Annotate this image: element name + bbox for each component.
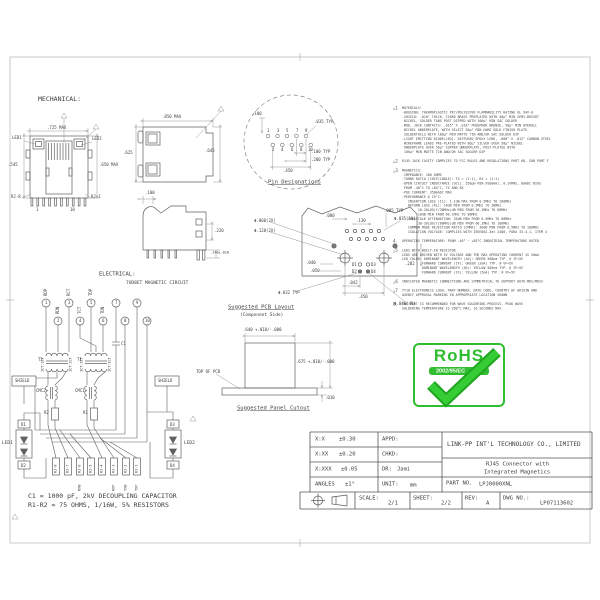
pcb-dim-phi128: Φ.128(2X)	[254, 229, 276, 233]
product-title-line2: Integrated Magnetics	[484, 469, 550, 475]
dr-value: Jami	[397, 466, 410, 472]
rj-pad-label: RJ-5	[89, 465, 93, 473]
front-led2-label: LED2	[92, 137, 102, 141]
rohs-checkmark-icon	[415, 345, 507, 409]
note-marker: △1	[393, 106, 402, 155]
note-text: LEDS WITH BUILT-IN RESISTOR LEDS ARE DRI…	[402, 248, 539, 274]
panel-cutout-dims	[216, 333, 333, 402]
sch-signal-rdn: RDN	[56, 307, 60, 314]
rj-pad-label: RJ-4	[100, 465, 104, 473]
sch-pin-number: 10	[145, 319, 150, 323]
note-marker: 8.	[393, 302, 402, 311]
tol-xxx-value: ±0.05	[341, 466, 358, 472]
shield-label-right: SHIELD	[158, 379, 172, 383]
panel-dim-thickness: .010	[325, 396, 335, 400]
pin-number: 2	[272, 148, 274, 152]
pins-dim-100t: .100 TYP	[311, 150, 330, 154]
d3-label: D3	[170, 423, 175, 427]
pcb-d4-label: D4	[371, 270, 376, 274]
magnetic-circuit-subtitle: 7UD8ET MAGNETIC CIRCUIT	[126, 281, 188, 286]
top-view	[138, 127, 213, 182]
pcb-dim-450: .450	[358, 295, 368, 299]
company-name: LINK-PP INT'L TECHNOLOGY CO., LIMITED	[447, 441, 581, 447]
side-view-dims	[140, 196, 220, 258]
pin-designations-title: Pin Designations	[268, 179, 321, 185]
note-marker: △2	[393, 159, 402, 164]
d1-label: D1	[21, 423, 26, 427]
rj-pad-label: RJ-6	[78, 465, 82, 473]
led1-label: LED1	[2, 441, 13, 446]
front-dim-width: .725 MAX	[47, 126, 66, 130]
note-marker: △5	[393, 248, 402, 274]
rj-pad-label: RJ-8	[54, 465, 58, 473]
side-dim-r2: .140±.010	[210, 251, 229, 255]
pin-number: 3	[277, 129, 279, 133]
note-item: 8.THE PART IS RECOMMENDED FOR WAVE SOLDE…	[393, 302, 598, 311]
sch-signal-rdp: RDP	[44, 289, 48, 296]
turns-ratio-label: 1CT:1CT	[41, 357, 45, 372]
pin-number: 1	[267, 129, 269, 133]
part-no-label: PART NO.	[446, 480, 472, 486]
part-no-value: LPJ0000XNL	[479, 481, 512, 487]
pin-number: 7	[296, 129, 298, 133]
tol-xx-label: X:XX	[315, 451, 328, 457]
top-dim-right: .645	[205, 149, 215, 153]
mechanical-title: MECHANICAL:	[38, 96, 81, 103]
sch-signal-tct: TCT	[78, 307, 82, 314]
front-dim-left: .545	[8, 163, 18, 167]
pcb-d3-label: D3	[371, 263, 376, 267]
cmc1-label: CMC1	[75, 389, 85, 393]
capacitor-note: C1 = 1000 pF, 2kV DECOUPLING CAPACITOR	[28, 493, 177, 500]
pcb-layout-title: Suggested PCB Layout	[228, 304, 294, 310]
scale-label: SCALE:	[359, 495, 379, 501]
rj-pad-label: RJ-7	[66, 465, 70, 473]
dwg-no-value: LP07113602	[540, 500, 573, 506]
product-title-line1: RJ45 Connector with	[486, 461, 549, 467]
pin-number: 4	[281, 148, 283, 152]
note-item: 4.OPERATING TEMPERATURE: FROM -40° ~ +85…	[393, 239, 598, 244]
pins-dim-035: .035 TYP	[314, 120, 333, 124]
tol-xx-value: ±0.20	[339, 451, 356, 457]
tol-angles-value: ±1°	[345, 481, 355, 487]
sig-rxp-label: RXP	[112, 485, 116, 491]
sig-txn-label: TXN	[124, 485, 128, 491]
rev-label: REV:	[465, 495, 478, 501]
pin-number: 6	[291, 148, 293, 152]
sch-pin-number: 6	[102, 319, 104, 323]
note-text: RJ45 JACK CAVITY COMPLIES TO FCC RULES A…	[402, 159, 549, 164]
schematic-wires	[24, 307, 173, 478]
note-item: △3MAGNETICS: -IMPEDANCE: 100 OHMS -TURNS…	[393, 168, 598, 234]
sig-rxn-label: RXN	[78, 485, 82, 491]
drawing-sheet: MECHANICAL: ELECTRICAL: 7UD8ET MAGNETIC …	[0, 0, 600, 600]
sch-signal-tdp: TDP	[89, 289, 93, 296]
electrical-title: ELECTRICAL:	[99, 271, 135, 277]
note-marker: 4.	[393, 239, 402, 244]
pin-number: 5	[286, 129, 288, 133]
chkd-label: CHKD:	[382, 451, 399, 457]
pcb-dim-080: .080	[325, 214, 335, 218]
rohs-logo: RoHS 2002/95/EC	[413, 343, 505, 407]
sch-pin-number: 5	[90, 301, 92, 305]
turns-ratio-label: 1CT:1CT	[69, 357, 73, 372]
appd-label: APPD:	[382, 436, 399, 442]
front-view	[26, 136, 92, 206]
d2-label: D2	[21, 464, 26, 468]
sch-signal-tdn: TDN	[101, 307, 105, 314]
unit-label: UNIT:	[382, 481, 399, 487]
projection-symbol-icon	[311, 494, 347, 508]
note-item: △1MATERIALS: -HOUSING: THERMOPLASTIC PET…	[393, 106, 598, 155]
note-item: △2RJ45 JACK CAVITY COMPLIES TO FCC RULES…	[393, 159, 598, 164]
c1-label: C1	[121, 342, 126, 346]
side-dim-r1: .220	[214, 229, 224, 233]
shield-label-left: SHIELD	[15, 379, 29, 383]
sch-pin-number: 1	[45, 301, 47, 305]
note-marker: △3	[393, 168, 402, 234]
d4-label: D4	[170, 464, 175, 468]
sch-pin-number: 2	[57, 319, 59, 323]
r2-label: R2	[44, 411, 49, 415]
note-marker: △7	[393, 289, 402, 298]
pcb-dim-040: .040	[306, 261, 316, 265]
pin-designation-detail	[244, 95, 338, 189]
turns-ratio-label: 1CT:1CT	[108, 357, 112, 372]
top-dim-width: .850 MAX	[162, 115, 181, 119]
unit-value: mm	[410, 482, 417, 488]
pcb-d2-label: D2	[352, 270, 357, 274]
pin-number: 9	[305, 129, 307, 133]
front-rj8-label: RJ-8	[11, 195, 21, 199]
note-item: △6INDICATED MAGNETIC CONNECTIONS ARE SYM…	[393, 279, 598, 284]
pcb-layout-subtitle: (Component Side)	[240, 313, 283, 318]
note-text: OPERATING TEMPERATURE: FROM -40° ~ +85°C…	[402, 239, 539, 244]
pcb-dim-050: .050	[310, 269, 320, 273]
panel-dim-width: .640 +.010/-.000	[243, 328, 282, 332]
resistor-note: R1-R2 = 75 OHMS, 1/16W, 5% RESISTORS	[28, 502, 169, 509]
led2-label: LED2	[184, 441, 195, 446]
pin-number: 10	[308, 148, 313, 152]
top-dim-left: .625	[123, 151, 133, 155]
pcb-dim-phi060: Φ.060(2X)	[254, 219, 276, 223]
rj-pad-label: RJ-2	[124, 465, 128, 473]
note-text: TY10 ELECTRONICS LOGO, PART NUMBER, DATE…	[402, 289, 537, 298]
pcb-dim-130: .130	[356, 219, 366, 223]
sheet-label: SHEET:	[413, 495, 433, 501]
tol-x-value: ±0.30	[339, 436, 356, 442]
tol-xxx-label: X:XXX	[315, 466, 332, 472]
top-of-pcb-label: TOP OF PCB	[196, 370, 220, 374]
front-pin1-label: 1	[36, 208, 38, 212]
notes-column: △1MATERIALS: -HOUSING: THERMOPLASTIC PET…	[393, 106, 496, 229]
front-pin10-label: 10	[70, 208, 75, 212]
sch-pin-number: 4	[79, 319, 81, 323]
pcb-dim-042: .042	[348, 281, 358, 285]
sch-pin-number: 3	[68, 301, 70, 305]
pcb-d1-label: D1	[352, 263, 357, 267]
front-dim-right: .650 MAX	[99, 163, 118, 167]
sch-pin-number: 9	[136, 301, 138, 305]
pins-dim-200t: .200 TYP	[311, 158, 330, 162]
note-text: MAGNETICS: -IMPEDANCE: 100 OHMS -TURNS R…	[402, 168, 547, 234]
note-marker: △6	[393, 279, 402, 284]
schematic-components	[12, 299, 196, 519]
pins-dim-450: .450	[283, 169, 293, 173]
r1-label: R1	[83, 411, 88, 415]
rev-value: A	[486, 500, 489, 506]
note-item: △7TY10 ELECTRONICS LOGO, PART NUMBER, DA…	[393, 289, 598, 298]
tol-x-label: X:X	[315, 436, 325, 442]
note-text: INDICATED MAGNETIC CONNECTIONS ARE SYMME…	[402, 279, 543, 284]
note-text: MATERIALS: -HOUSING: THERMOPLASTIC PET/P…	[402, 106, 551, 155]
front-rj1-label: RJ-1	[91, 195, 101, 199]
sheet-value: 2/2	[441, 500, 451, 506]
rj-pad-label: RJ-1	[135, 465, 139, 473]
sch-pin-number: 7	[115, 301, 117, 305]
pin-detail-dims	[259, 118, 316, 170]
pcb-dim-phi032: Φ.032 TYP	[278, 291, 300, 295]
panel-dim-height: .675 +.010/-.000	[296, 360, 335, 364]
side-dim-top: .100	[145, 191, 155, 195]
dwg-no-label: DWG NO.:	[503, 495, 529, 501]
turns-ratio-label: 1CT:1CT	[80, 357, 84, 372]
note-item: △5LEDS WITH BUILT-IN RESISTOR LEDS ARE D…	[393, 248, 598, 274]
note-text: THE PART IS RECOMMENDED FOR WAVE SOLDERI…	[402, 302, 523, 311]
panel-cutout-title: Suggested Panel Cutout	[237, 405, 310, 411]
pin-number: 8	[300, 148, 302, 152]
dr-label: DR:	[382, 466, 392, 472]
panel-cutout	[222, 343, 317, 395]
front-led1-label: LED1	[12, 136, 22, 140]
cmc2-label: CMC2	[36, 389, 46, 393]
sch-signal-rct: RCT	[67, 289, 71, 296]
side-view	[143, 206, 206, 260]
tol-angles-label: ANGLES	[315, 481, 335, 487]
rj-pad-label: RJ-3	[112, 465, 116, 473]
sig-txp-label: TXP	[135, 485, 139, 491]
sch-pin-number: 8	[124, 319, 126, 323]
pins-dim-100: .100	[252, 112, 262, 116]
scale-value: 2/1	[388, 500, 398, 506]
